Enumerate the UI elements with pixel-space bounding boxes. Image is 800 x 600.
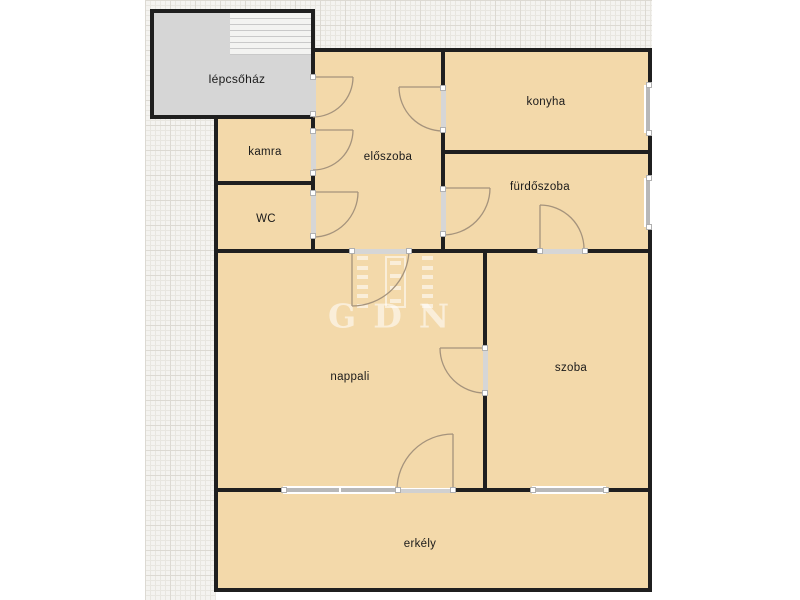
wall-joint bbox=[646, 175, 652, 181]
wall-joint bbox=[537, 248, 543, 254]
wall-joint bbox=[310, 170, 316, 176]
floor-plan-canvas: GDN bbox=[0, 0, 800, 600]
wall-joint bbox=[482, 345, 488, 351]
room-label-wc: WC bbox=[256, 213, 276, 225]
wall-segment bbox=[214, 249, 352, 253]
wall-joint bbox=[310, 111, 316, 117]
room-label-szoba: szoba bbox=[555, 362, 587, 374]
wall-joint bbox=[646, 130, 652, 136]
window-mullion bbox=[339, 486, 341, 494]
door-opening bbox=[441, 188, 446, 235]
room-label-konyha: konyha bbox=[527, 96, 566, 108]
wall-segment bbox=[483, 393, 487, 492]
wall-joint bbox=[582, 248, 588, 254]
door-opening bbox=[441, 87, 446, 131]
wall-segment bbox=[441, 150, 652, 154]
room-label-erkely: erkély bbox=[404, 538, 436, 550]
wall-segment bbox=[311, 9, 315, 77]
wall-joint bbox=[349, 248, 355, 254]
wall-segment bbox=[441, 131, 445, 188]
wall-joint bbox=[450, 487, 456, 493]
wall-segment bbox=[483, 249, 487, 348]
window bbox=[532, 486, 606, 494]
door-opening bbox=[540, 249, 585, 254]
wall-joint bbox=[281, 487, 287, 493]
room-label-furdoszoba: fürdőszoba bbox=[510, 181, 570, 193]
wall-segment bbox=[441, 235, 445, 253]
wall-segment bbox=[214, 115, 218, 592]
wall-joint bbox=[646, 82, 652, 88]
window bbox=[644, 178, 652, 227]
wall-joint bbox=[310, 74, 316, 80]
wall-joint bbox=[440, 85, 446, 91]
room-area-left bbox=[216, 119, 313, 590]
wall-joint bbox=[482, 390, 488, 396]
wall-segment bbox=[313, 48, 652, 52]
room-label-lepcsohaz: lépcsőház bbox=[209, 72, 266, 86]
door-opening bbox=[311, 192, 316, 237]
wall-segment bbox=[585, 249, 652, 253]
wall-joint bbox=[406, 248, 412, 254]
door-opening bbox=[311, 77, 316, 115]
wall-joint bbox=[310, 233, 316, 239]
room-label-eloszoba: előszoba bbox=[364, 151, 412, 163]
door-opening bbox=[311, 130, 316, 173]
wall-joint bbox=[310, 128, 316, 134]
door-opening bbox=[352, 249, 409, 254]
wall-joint bbox=[646, 224, 652, 230]
wall-joint bbox=[395, 487, 401, 493]
wall-segment bbox=[150, 9, 154, 119]
wall-segment bbox=[409, 249, 541, 253]
wall-segment bbox=[441, 48, 445, 87]
wall-joint bbox=[603, 487, 609, 493]
window bbox=[644, 85, 652, 133]
gdn-text-watermark: GDN bbox=[328, 297, 466, 336]
wall-segment bbox=[311, 237, 315, 253]
wall-segment bbox=[214, 588, 652, 592]
wall-joint bbox=[440, 127, 446, 133]
wall-joint bbox=[310, 190, 316, 196]
wall-segment bbox=[214, 181, 315, 185]
door-opening bbox=[483, 348, 488, 393]
room-label-nappali: nappali bbox=[330, 371, 369, 383]
wall-joint bbox=[530, 487, 536, 493]
wall-segment bbox=[150, 9, 315, 13]
room-label-kamra: kamra bbox=[248, 146, 281, 158]
grid-texture-left bbox=[145, 50, 216, 600]
balcony-door-sill bbox=[398, 488, 453, 493]
wall-segment bbox=[150, 115, 315, 119]
wall-joint bbox=[440, 231, 446, 237]
stair-treads bbox=[230, 13, 311, 55]
wall-joint bbox=[440, 186, 446, 192]
